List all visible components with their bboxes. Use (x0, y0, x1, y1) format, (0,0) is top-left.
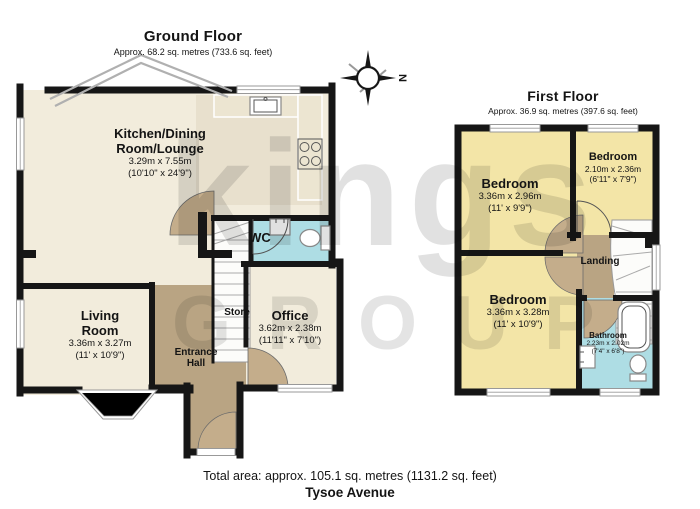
wc-label: WC (234, 230, 286, 245)
wall-stub-2 (198, 250, 232, 258)
entrance-hall-label: Entrance Hall (156, 347, 236, 369)
bath-toilet-icon (630, 355, 646, 381)
bedroom2-metric: 2.10m x 2.36m (553, 164, 673, 174)
hall-name-2: Hall (156, 358, 236, 369)
wall-stub-3 (20, 250, 36, 258)
kitchen-sink-icon (250, 97, 281, 115)
first-floor-title: First Floor (433, 88, 693, 104)
living-room-label: Living Room 3.36m x 3.27m (11' x 10'9") (30, 308, 170, 361)
kitchen-name-1: Kitchen/Dining (60, 126, 260, 141)
compass-icon (340, 50, 396, 106)
bathroom-label: Bathroom 2.23m x 2.02m (7'4" x 6'8") (568, 331, 648, 355)
bathroom-imperial: (7'4" x 6'8") (568, 348, 648, 356)
office-metric: 3.62m x 2.38m (220, 323, 360, 335)
ground-floor-header: Ground Floor Approx. 68.2 sq. metres (73… (63, 28, 323, 57)
office-imperial: (11'11" x 7'10") (220, 335, 360, 347)
kitchen-counter-right (298, 95, 322, 200)
floorplan-page: kings GROUP Ground Floor Approx. 68.2 sq… (0, 0, 700, 509)
bedroom3-imperial: (11' x 10'9") (448, 319, 588, 331)
living-name-1: Living (30, 308, 170, 323)
ground-floor-subtitle: Approx. 68.2 sq. metres (733.6 sq. feet) (63, 47, 323, 57)
living-metric: 3.36m x 3.27m (30, 338, 170, 350)
bedroom2-imperial: (6'11" x 7'9") (553, 174, 673, 184)
kitchen-imperial: (10'10" x 24'9") (60, 168, 260, 180)
front-door-slot (197, 449, 235, 456)
landing-label: Landing (560, 256, 640, 267)
kitchen-name-2: Room/Lounge (60, 141, 260, 156)
address-text: Tysoe Avenue (100, 485, 600, 500)
ground-floor-plan (17, 55, 341, 456)
total-area-text: Total area: approx. 105.1 sq. metres (11… (100, 469, 600, 483)
first-floor-header: First Floor Approx. 36.9 sq. metres (397… (433, 88, 693, 116)
bathroom-metric: 2.23m x 2.02m (568, 340, 648, 348)
compass-north-label: N (396, 74, 408, 82)
living-name-2: Room (30, 323, 170, 338)
bedroom2-name: Bedroom (553, 151, 673, 164)
living-imperial: (11' x 10'9") (30, 350, 170, 362)
floorplan-drawing (0, 0, 700, 509)
first-floor-subtitle: Approx. 36.9 sq. metres (397.6 sq. feet) (433, 106, 693, 116)
ground-floor-title: Ground Floor (63, 28, 323, 45)
bedroom2-label: Bedroom 2.10m x 2.36m (6'11" x 7'9") (553, 151, 673, 184)
bedroom3-name: Bedroom (448, 292, 588, 307)
footer: Total area: approx. 105.1 sq. metres (11… (100, 469, 600, 500)
bedroom3-metric: 3.36m x 3.28m (448, 307, 588, 319)
bedroom1-imperial: (11' x 9'9") (440, 203, 580, 215)
kitchen-label: Kitchen/Dining Room/Lounge 3.29m x 7.55m… (60, 126, 260, 179)
bedroom3-label: Bedroom 3.36m x 3.28m (11' x 10'9") (448, 292, 588, 330)
kitchen-metric: 3.29m x 7.55m (60, 156, 260, 168)
bathroom-name: Bathroom (568, 331, 648, 340)
hall-name-1: Entrance (156, 347, 236, 358)
bedroom1-metric: 3.36m x 2.96m (440, 191, 580, 203)
store-label: Store (207, 307, 267, 318)
